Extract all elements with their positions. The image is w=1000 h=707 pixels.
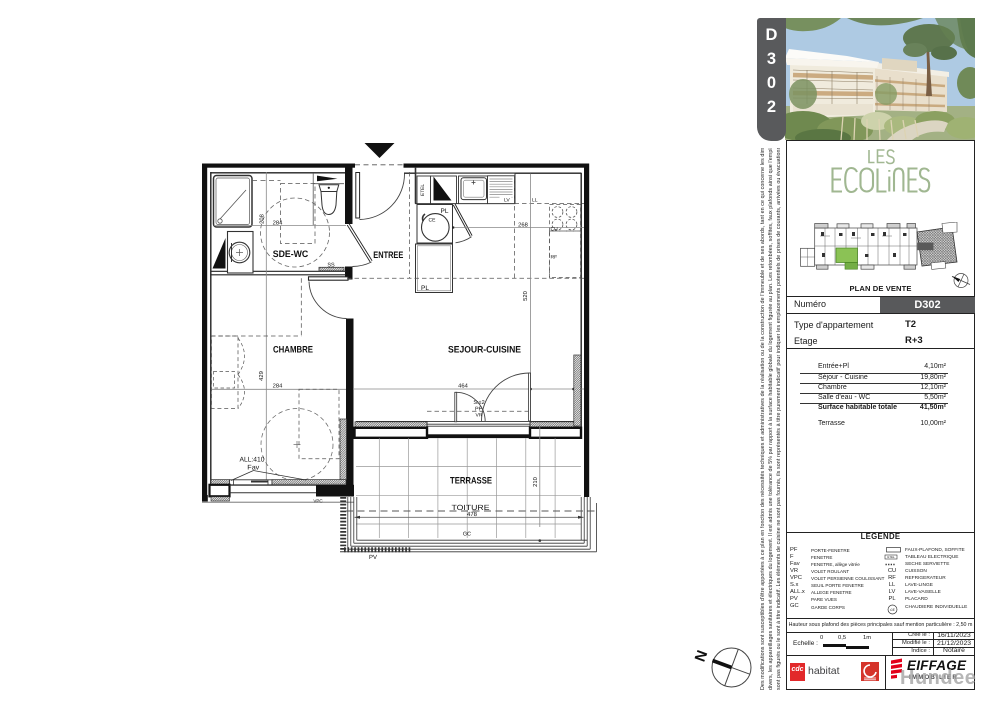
svg-text:LL: LL	[532, 198, 538, 204]
svg-text:TERRASSE: TERRASSE	[450, 475, 492, 486]
svg-text:N: N	[692, 648, 712, 664]
svg-text:210: 210	[532, 477, 539, 487]
svg-text:CE: CE	[890, 608, 894, 612]
svg-text:520: 520	[522, 291, 529, 301]
svg-text:ALL:410: ALL:410	[240, 457, 265, 464]
svg-text:S:±2: S:±2	[473, 400, 484, 406]
svg-text:ETEL: ETEL	[420, 184, 426, 196]
svg-text:CU: CU	[551, 227, 559, 233]
svg-text:CE: CE	[429, 218, 437, 224]
svg-text:PF: PF	[475, 406, 483, 412]
svg-text:GC: GC	[463, 532, 471, 538]
svg-text:284: 284	[273, 220, 283, 227]
svg-text:RF: RF	[551, 255, 558, 261]
svg-text:PL: PL	[421, 285, 429, 292]
svg-text:SEJOUR-CUISINE: SEJOUR-CUISINE	[448, 344, 521, 355]
svg-text:284: 284	[273, 383, 283, 390]
svg-text:PV: PV	[369, 554, 377, 561]
svg-text:PL: PL	[441, 208, 449, 215]
svg-text:208: 208	[259, 214, 266, 224]
svg-text:LV: LV	[504, 198, 510, 204]
svg-text:268: 268	[518, 221, 528, 228]
svg-text:VPC: VPC	[313, 499, 323, 504]
svg-text:478: 478	[467, 511, 478, 518]
svg-text:SDE-WC: SDE-WC	[273, 248, 309, 259]
svg-text:ENTREE: ENTREE	[373, 249, 403, 260]
svg-text:ETEL: ETEL	[888, 555, 895, 559]
svg-text:464: 464	[458, 383, 468, 390]
svg-text:TOITURE: TOITURE	[452, 503, 490, 512]
svg-text:429: 429	[258, 371, 265, 381]
svg-text:SS: SS	[327, 263, 335, 269]
svg-text:Fav: Fav	[247, 464, 260, 471]
svg-text:CHAMBRE: CHAMBRE	[273, 344, 313, 355]
svg-text:VR: VR	[476, 413, 483, 419]
